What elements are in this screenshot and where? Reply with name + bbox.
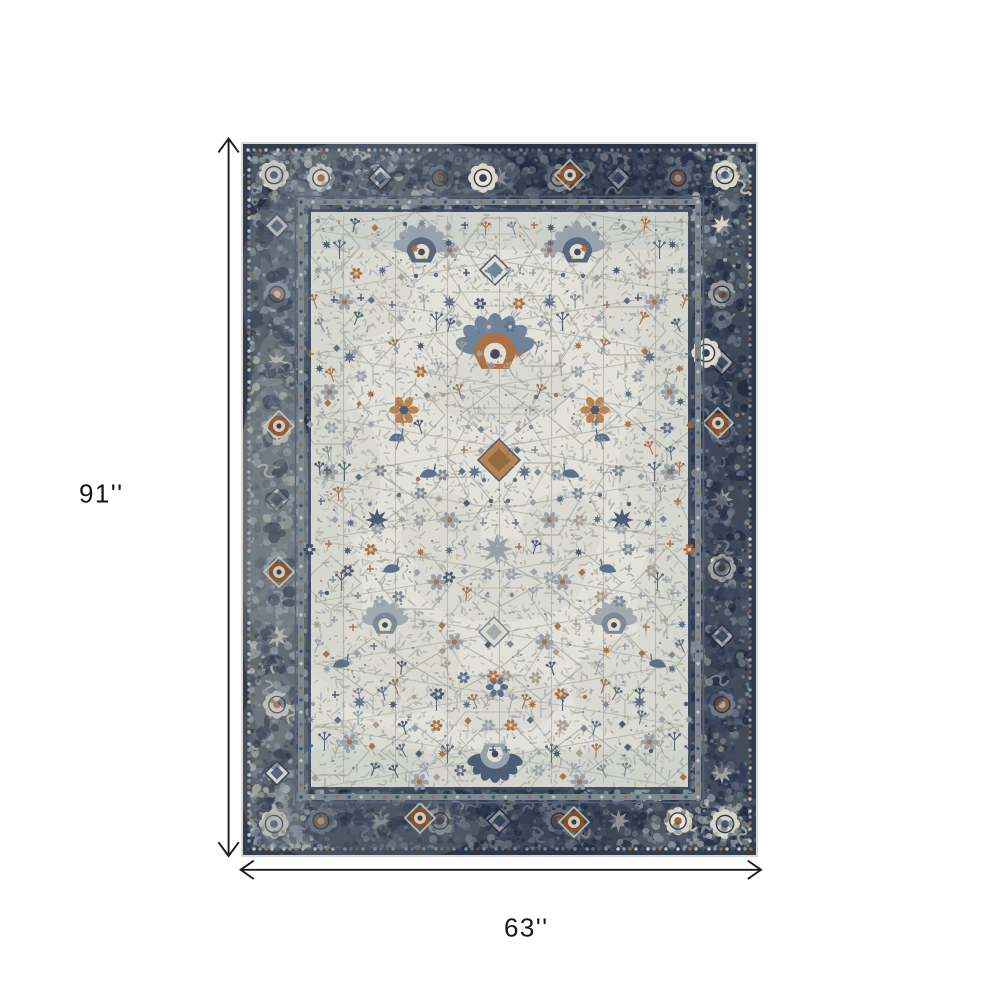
svg-text:63'': 63'' xyxy=(504,913,548,943)
svg-text:91'': 91'' xyxy=(79,479,123,509)
